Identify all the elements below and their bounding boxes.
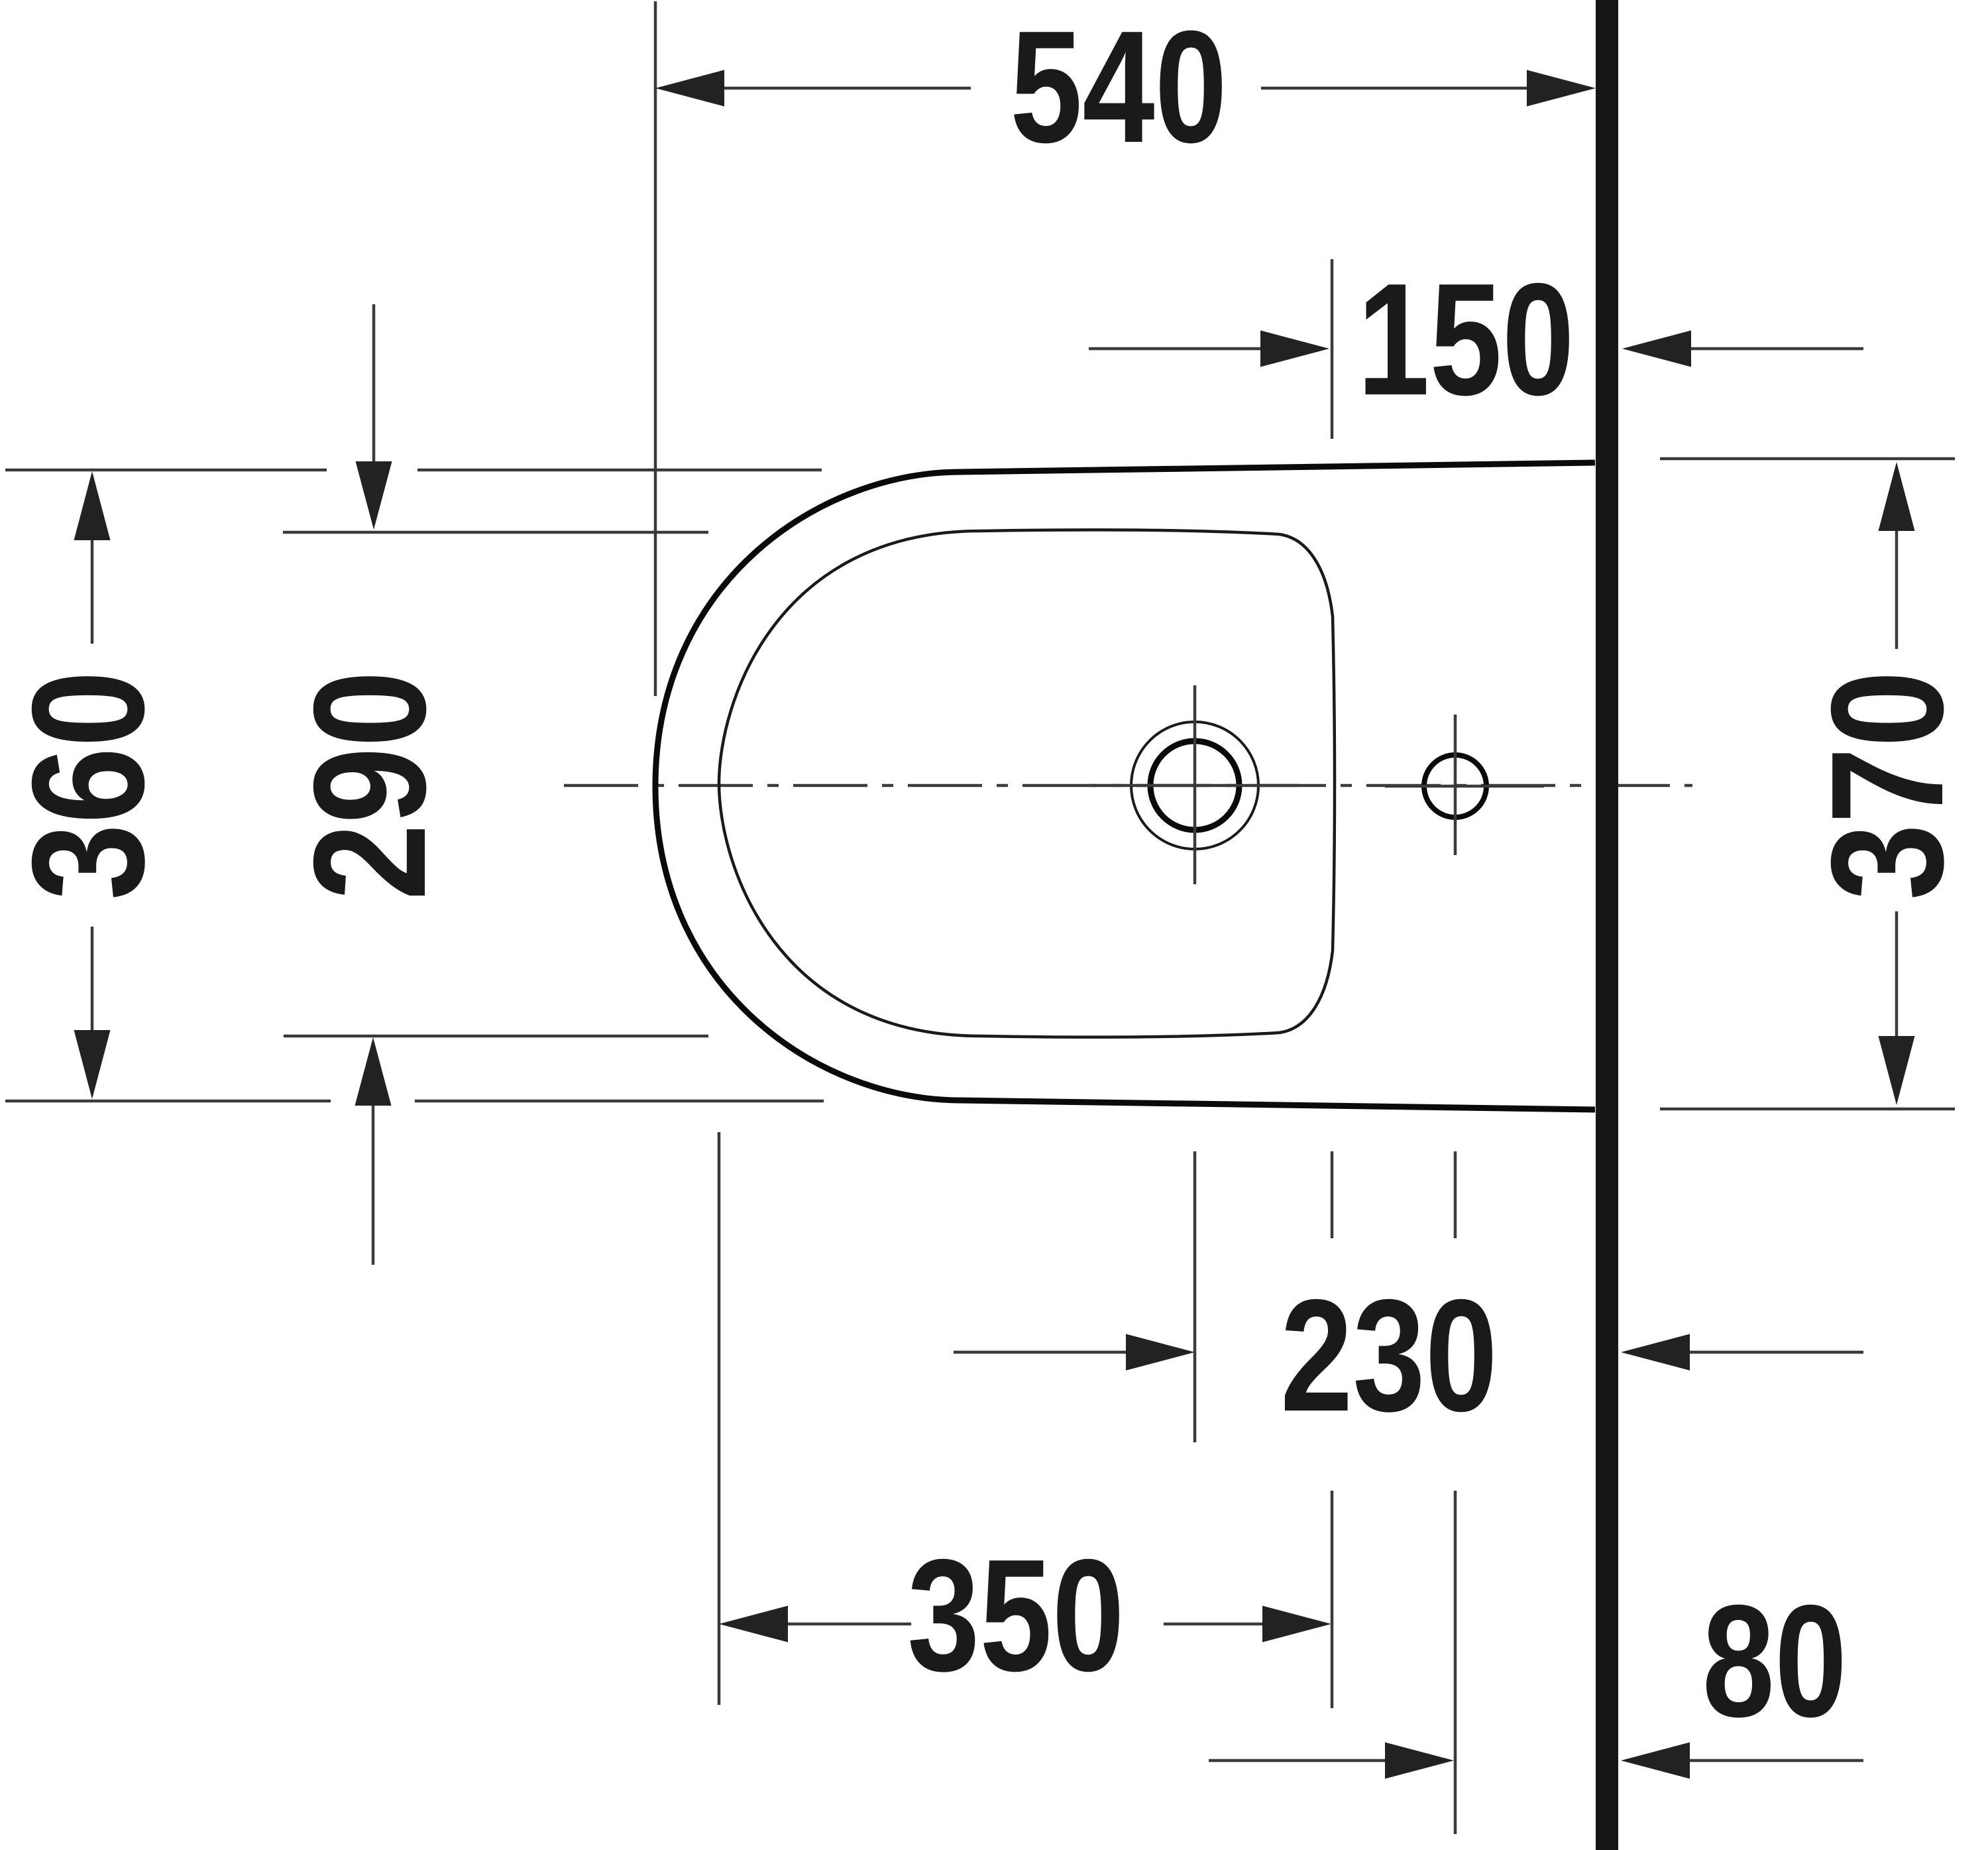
svg-text:230: 230 (1280, 1266, 1498, 1445)
svg-text:370: 370 (1797, 671, 1976, 901)
svg-text:80: 80 (1702, 1572, 1847, 1751)
svg-text:540: 540 (1010, 0, 1227, 176)
svg-text:360: 360 (0, 671, 177, 901)
svg-text:150: 150 (1357, 250, 1574, 429)
svg-text:350: 350 (907, 1526, 1125, 1705)
svg-text:290: 290 (280, 671, 459, 901)
